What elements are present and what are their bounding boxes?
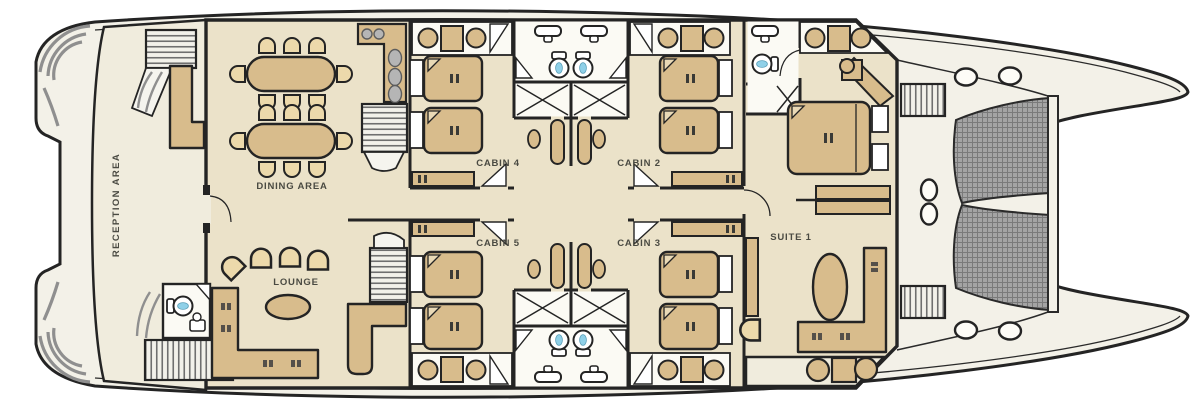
aft-stools bbox=[807, 358, 877, 382]
cabin4-label: CABIN 4 bbox=[476, 158, 520, 169]
dining-table-1 bbox=[247, 57, 335, 91]
cabin4-wardrobe bbox=[412, 172, 474, 186]
deck-stairs-top bbox=[901, 84, 945, 116]
dining-table-2 bbox=[247, 124, 335, 158]
cabin3-label: CABIN 3 bbox=[617, 238, 661, 249]
cabin5-label: CABIN 5 bbox=[476, 238, 520, 249]
cabin3-wardrobe bbox=[672, 222, 742, 236]
deck-stairs-bottom bbox=[901, 286, 945, 318]
suite-table bbox=[813, 254, 847, 320]
saloon-stairs bbox=[370, 248, 407, 302]
suite-wardrobe bbox=[746, 238, 758, 316]
galley-stairs bbox=[362, 104, 407, 152]
cabin2-label: CABIN 2 bbox=[617, 158, 661, 169]
suite1-label: SUITE 1 bbox=[770, 232, 812, 243]
reception-label: RECEPTION AREA bbox=[111, 153, 122, 257]
cabin2-wardrobe bbox=[672, 172, 742, 186]
suite-bathroom bbox=[748, 22, 801, 113]
reception-wc bbox=[163, 284, 210, 338]
deck-plan: RECEPTION AREA bbox=[0, 0, 1200, 408]
dining-label: DINING AREA bbox=[256, 181, 327, 192]
reception-stairs-top bbox=[146, 30, 196, 68]
cabin5-wardrobe bbox=[412, 222, 474, 236]
lounge-label: LOUNGE bbox=[273, 277, 318, 288]
lounge-table bbox=[266, 295, 310, 319]
deck-plan-svg: RECEPTION AREA bbox=[0, 0, 1200, 408]
bow-crossbeam bbox=[1048, 96, 1058, 312]
